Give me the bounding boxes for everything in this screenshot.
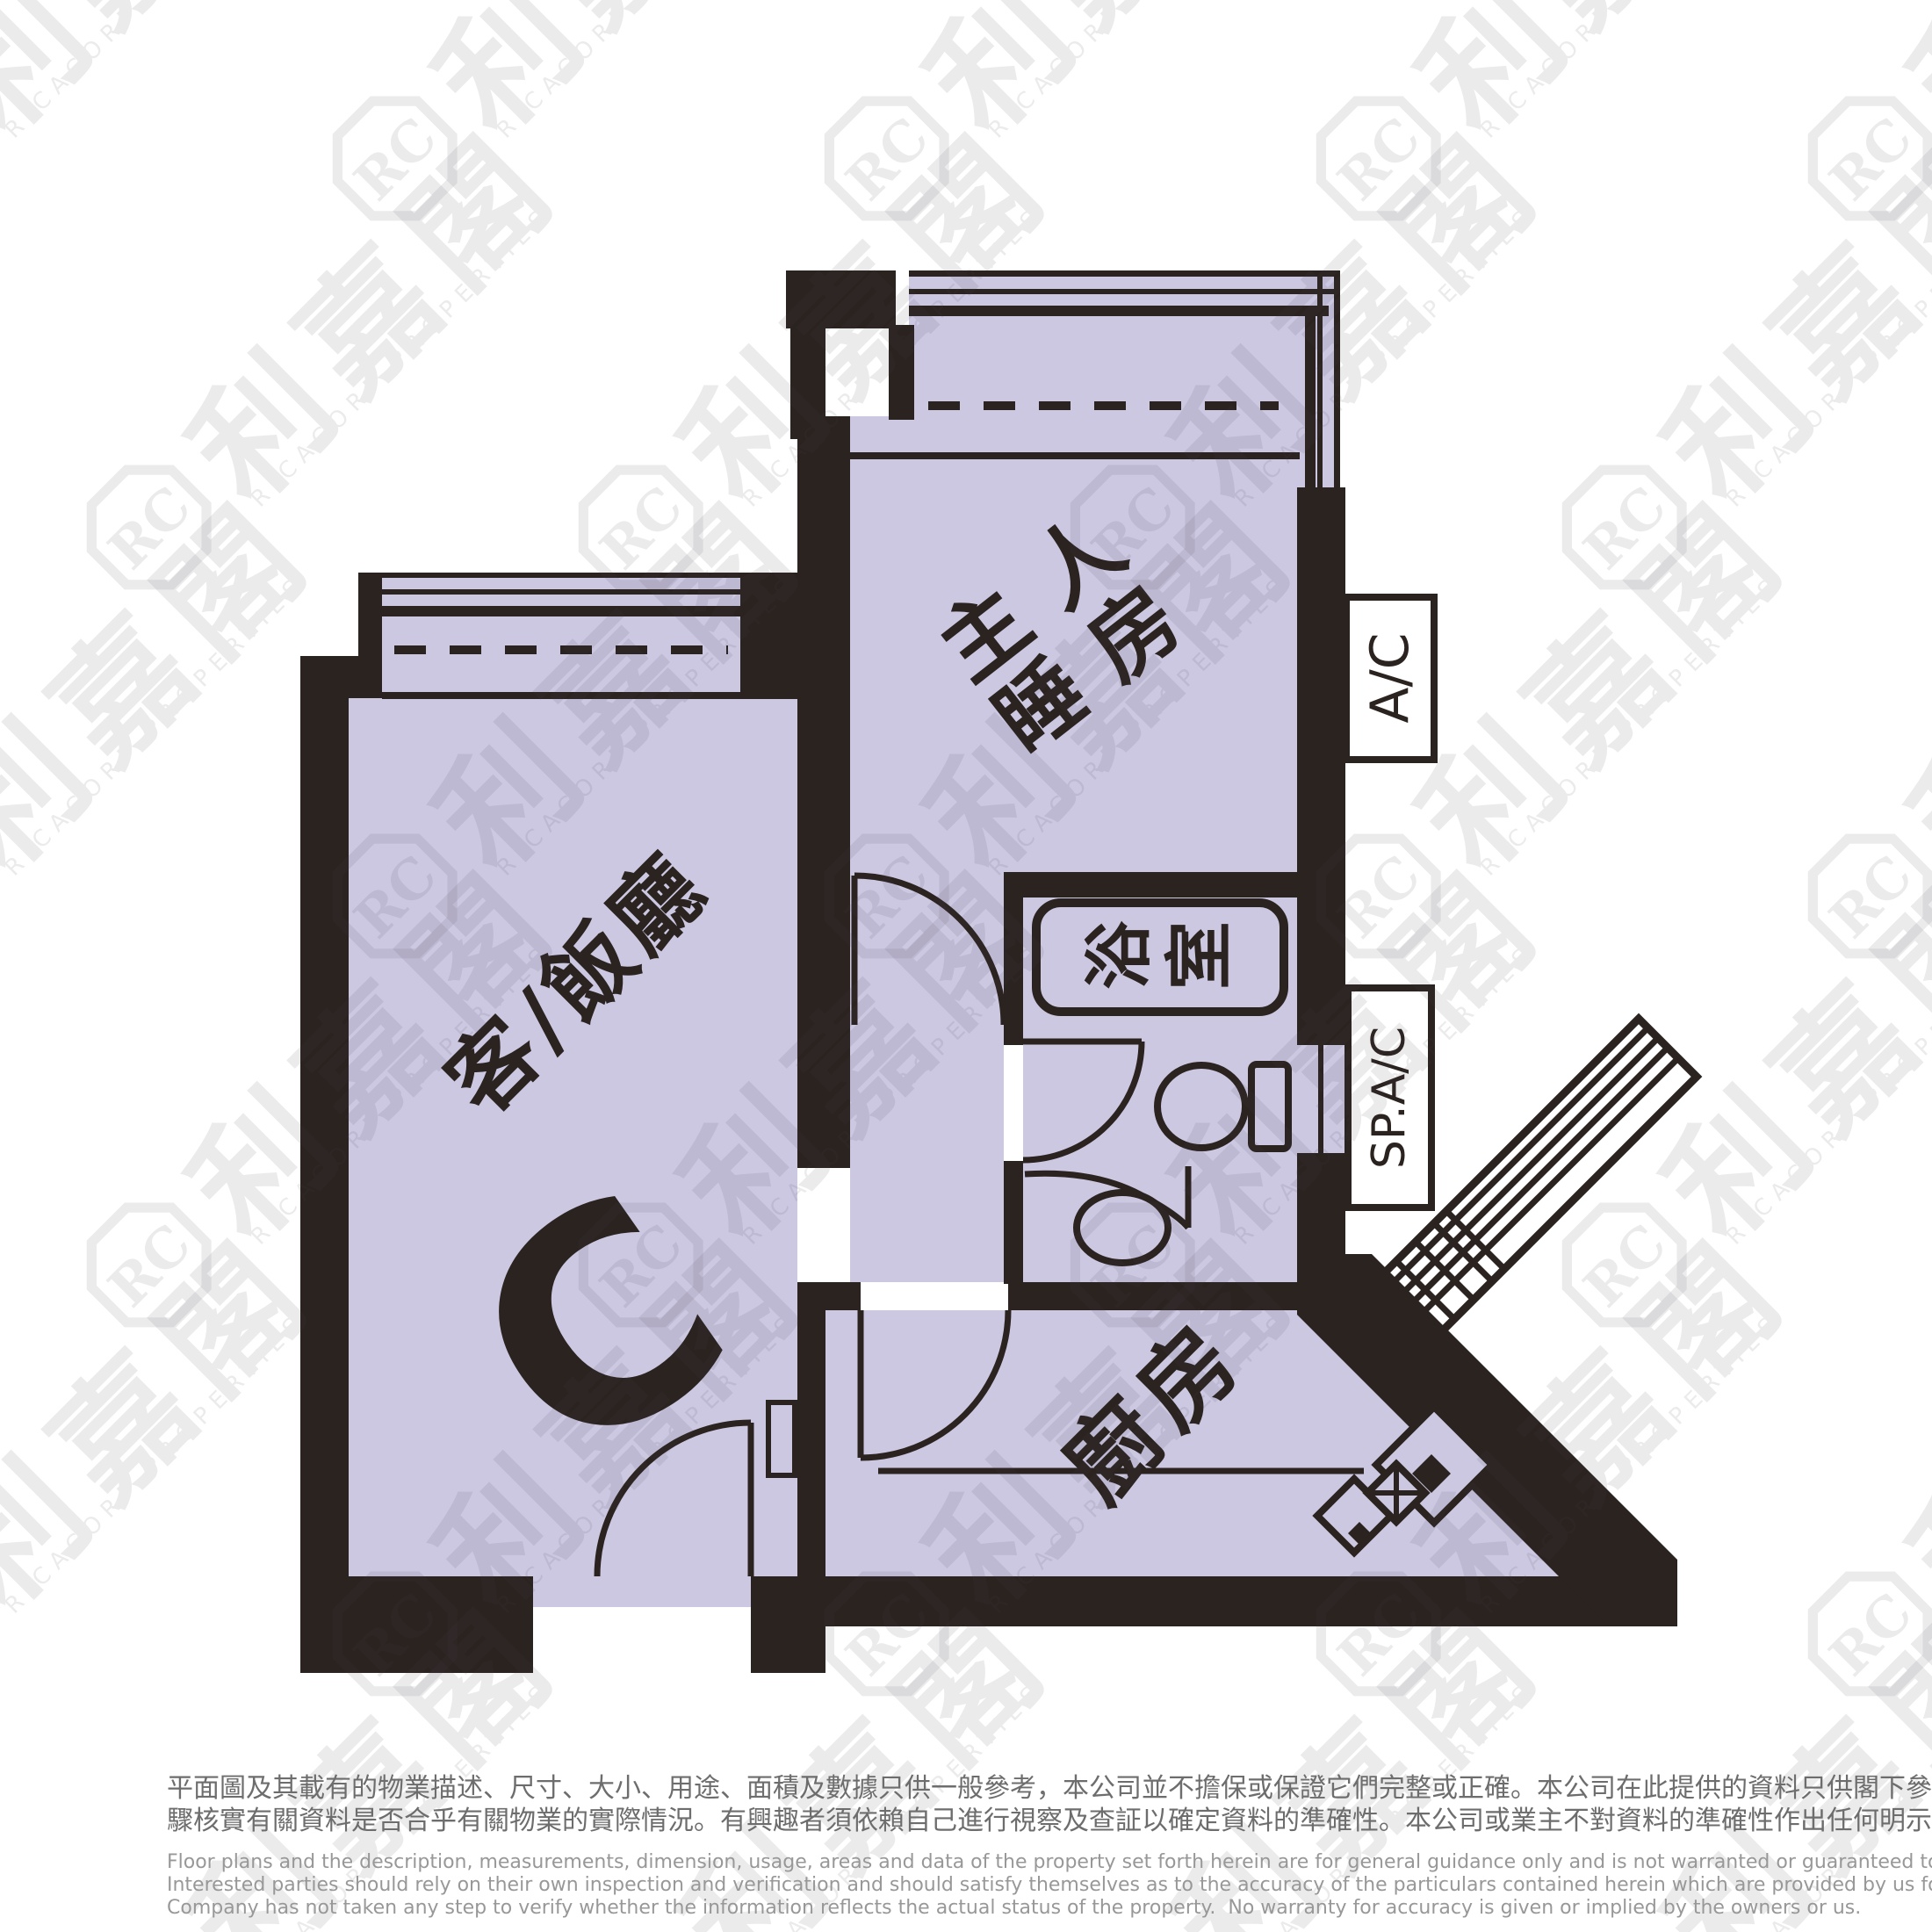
disclaimer-en-line: Floor plans and the description, measure…: [167, 1851, 1862, 1874]
ac-label: A/C: [1364, 632, 1417, 723]
sp-ac-label: SP.A/C: [1366, 1027, 1412, 1169]
toilet-tank: [1251, 1064, 1288, 1149]
bathroom-label: 浴 室: [1085, 921, 1235, 990]
disclaimer-en-line: Company has not taken any step to verify…: [167, 1897, 1862, 1920]
disclaimer: 平面圖及其載有的物業描述、尺寸、大小、用途、面積及數據只供一般參考，本公司並不擔…: [167, 1772, 1862, 1920]
disclaimer-en-line: Interested parties should rely on their …: [167, 1874, 1862, 1897]
floor-plan: [0, 0, 1932, 1932]
disclaimer-cn-line: 驟核實有關資料是否合乎有關物業的實際情況。有興趣者須依賴自己進行視察及查証以確定…: [167, 1805, 1862, 1837]
bathroom-label-char1: 浴: [1085, 921, 1154, 990]
toilet-bowl: [1157, 1065, 1245, 1148]
floorplan-page: 客/飯廳 主人 睡房 浴 室 廚房 A/C SP.A/C C RC利嘉閣RICA…: [0, 0, 1932, 1932]
disclaimer-cn-line: 平面圖及其載有的物業描述、尺寸、大小、用途、面積及數據只供一般參考，本公司並不擔…: [167, 1772, 1862, 1805]
bathroom-label-char2: 室: [1166, 921, 1235, 990]
